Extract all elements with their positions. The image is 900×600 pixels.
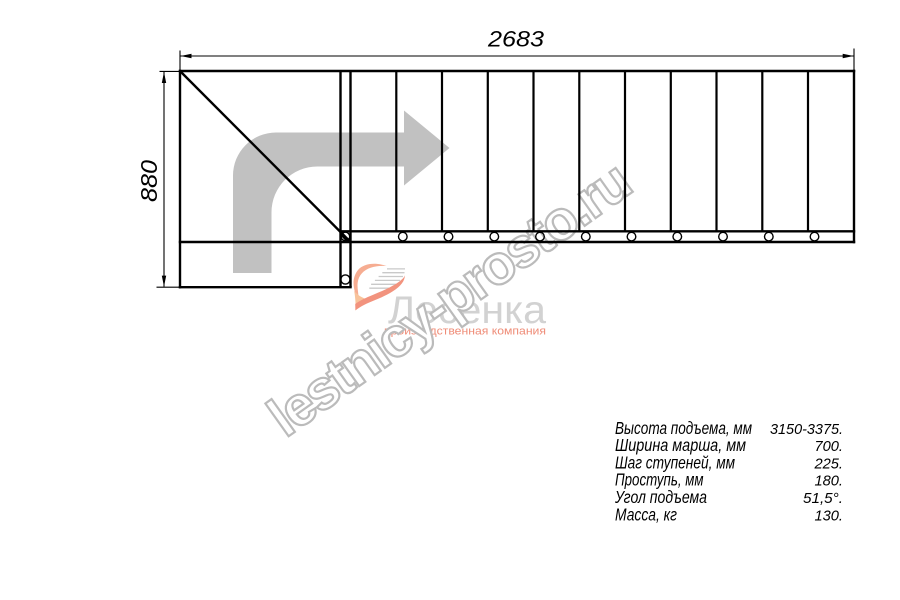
svg-text:2683: 2683	[487, 27, 545, 52]
svg-text:700.: 700.	[815, 438, 844, 455]
svg-text:225.: 225.	[814, 455, 843, 472]
svg-text:880: 880	[136, 160, 162, 202]
svg-text:130.: 130.	[815, 507, 844, 524]
svg-text:180.: 180.	[815, 473, 844, 490]
svg-text:3150-3375.: 3150-3375.	[770, 421, 843, 438]
svg-text:Масса, кг: Масса, кг	[615, 504, 677, 524]
svg-text:51,5°.: 51,5°.	[803, 490, 843, 507]
